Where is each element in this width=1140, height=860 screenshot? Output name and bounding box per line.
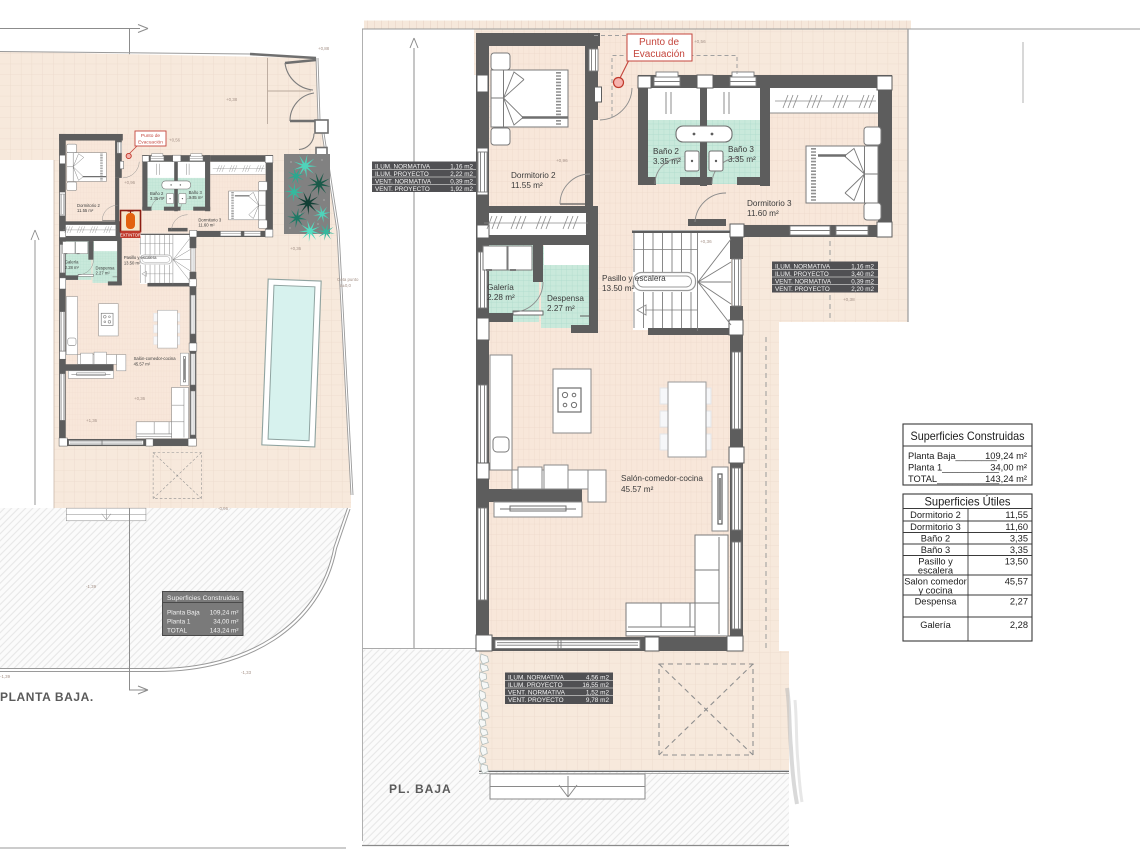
svg-text:-1,33: -1,33 [241,670,252,675]
svg-text:9,78 m2: 9,78 m2 [586,697,610,704]
svg-text:2.27 m²: 2.27 m² [547,304,575,313]
svg-text:escalera: escalera [918,566,954,576]
svg-text:109,24 m²: 109,24 m² [985,451,1027,461]
svg-text:+0,56: +0,56 [169,138,181,143]
svg-text:2,20 m2: 2,20 m2 [851,286,874,293]
svg-text:Dormitorio 2: Dormitorio 2 [910,510,961,520]
svg-text:Superficies Construidas: Superficies Construidas [911,429,1025,443]
svg-text:Baño 2: Baño 2 [921,534,950,544]
svg-text:-1,39: -1,39 [86,584,97,589]
svg-text:+0,56: +0,56 [694,39,706,44]
svg-text:11.60 m²: 11.60 m² [747,209,779,218]
svg-text:Planta 1: Planta 1 [167,619,191,626]
svg-text:Superficies Construidas: Superficies Construidas [167,595,239,602]
svg-text:Despensa: Despensa [915,597,958,607]
svg-text:2,28: 2,28 [1010,620,1028,630]
svg-text:Baño 3: Baño 3 [921,545,950,555]
svg-text:Evacuación: Evacuación [138,140,163,146]
svg-text:109,24 m²: 109,24 m² [210,610,239,617]
svg-text:3,35: 3,35 [1010,545,1028,555]
svg-text:+0,36: +0,36 [290,246,302,251]
svg-text:Punto de: Punto de [141,133,161,139]
svg-text:+0,96: +0,96 [124,180,136,185]
svg-text:34,00 m²: 34,00 m² [990,463,1027,473]
svg-text:13.50 m²: 13.50 m² [602,284,635,293]
svg-text:+0,38: +0,38 [843,297,855,302]
svg-text:Dormitorio 3: Dormitorio 3 [747,199,792,208]
svg-text:Superficies Útiles: Superficies Útiles [925,494,1011,509]
svg-text:+0,88: +0,88 [318,46,330,51]
svg-text:Dormitorio 3: Dormitorio 3 [910,522,961,532]
svg-text:2,27: 2,27 [1010,597,1028,607]
svg-text:a±0,0: a±0,0 [340,283,352,288]
svg-text:+0,38: +0,38 [226,97,238,102]
svg-text:Despensa: Despensa [547,294,584,303]
svg-text:Baño 3: Baño 3 [728,145,754,154]
svg-text:+0,36: +0,36 [134,396,146,401]
svg-text:-0,96: -0,96 [218,506,229,511]
svg-text:VENT. PROYECTO: VENT. PROYECTO [775,286,830,293]
svg-text:1,92 m2: 1,92 m2 [450,186,473,193]
svg-text:3.35 m²: 3.35 m² [653,157,681,166]
svg-text:y cocina: y cocina [918,586,953,596]
svg-text:VENT. PROYECTO: VENT. PROYECTO [375,186,430,193]
svg-text:VENT. PROYECTO: VENT. PROYECTO [508,697,564,704]
svg-text:45.57 m²: 45.57 m² [621,485,654,494]
svg-text:Galería: Galería [487,283,514,292]
svg-text:Cota punto: Cota punto [337,277,359,282]
svg-text:143,24 m²: 143,24 m² [210,628,239,635]
svg-text:3,35: 3,35 [1010,534,1028,544]
svg-text:45,57: 45,57 [1005,577,1028,587]
svg-text:Pasillo y escalera: Pasillo y escalera [602,274,666,283]
svg-text:Planta 1___________: Planta 1___________ [908,463,1000,473]
svg-text:-1,39: -1,39 [0,674,11,679]
svg-text:Planta Baja: Planta Baja [167,610,200,617]
svg-text:34,00 m²: 34,00 m² [213,619,238,626]
svg-text:EXTINTOR: EXTINTOR [120,233,141,238]
svg-text:Galería: Galería [920,620,951,630]
svg-text:3.35 m²: 3.35 m² [728,155,756,164]
svg-text:11,55: 11,55 [1005,510,1028,520]
svg-text:PL. BAJA: PL. BAJA [389,782,452,796]
svg-text:11.55 m²: 11.55 m² [511,181,543,190]
svg-text:Baño 2: Baño 2 [653,147,679,156]
svg-text:Salón-comedor-cocina: Salón-comedor-cocina [621,474,703,483]
svg-text:11,60: 11,60 [1005,522,1028,532]
svg-text:Evacuación: Evacuación [633,49,685,60]
svg-text:TOTAL: TOTAL [167,628,187,635]
svg-text:+0,96: +0,96 [556,158,568,163]
svg-text:Dormitorio 2: Dormitorio 2 [511,171,556,180]
svg-text:PLANTA BAJA.: PLANTA BAJA. [0,690,94,704]
svg-text:13,50: 13,50 [1005,557,1028,567]
svg-text:+0,36: +0,36 [700,239,712,244]
svg-text:Punto de: Punto de [639,37,679,48]
svg-text:2.28 m²: 2.28 m² [487,293,515,302]
svg-text:+1,36: +1,36 [86,418,98,423]
svg-text:143,24 m²: 143,24 m² [985,474,1027,484]
